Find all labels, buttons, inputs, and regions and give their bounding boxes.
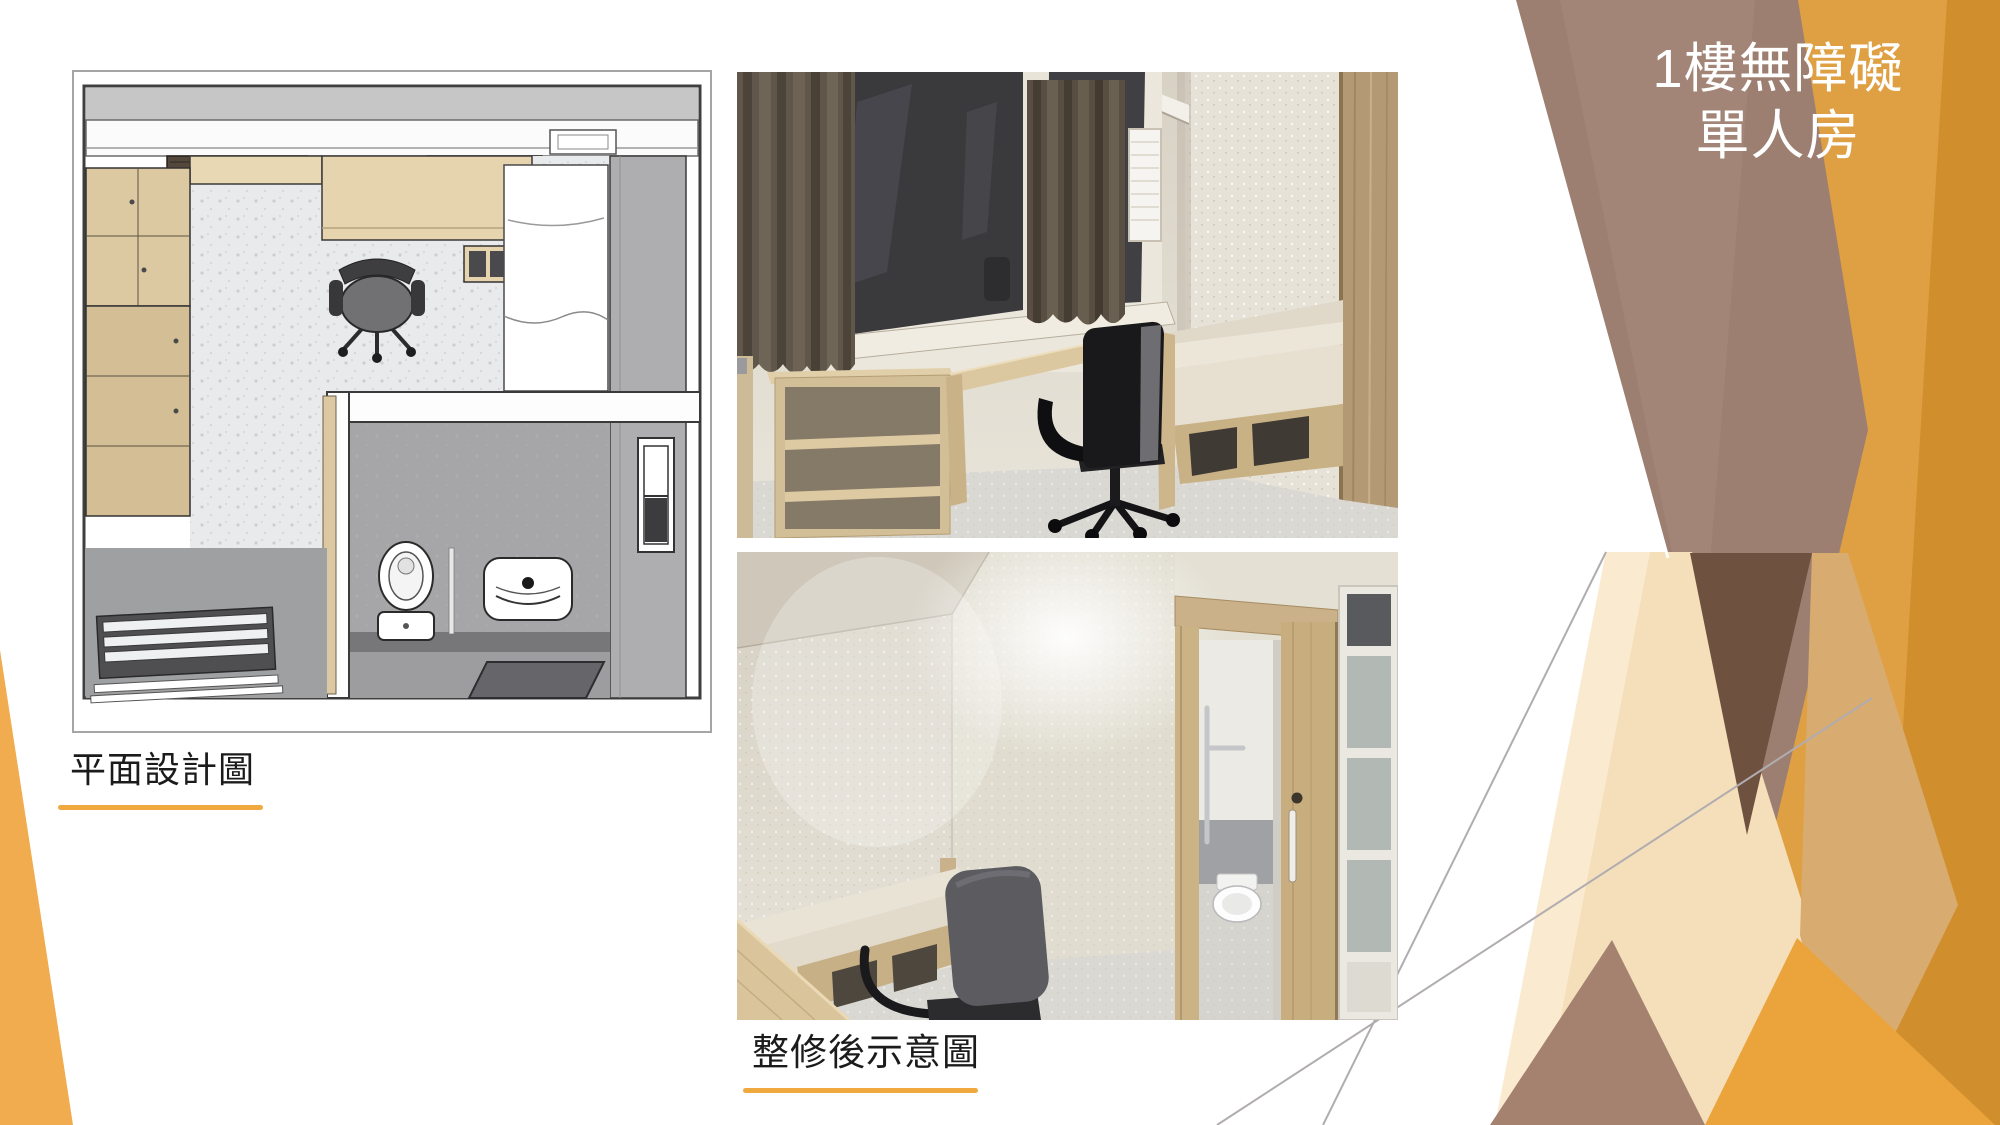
slide: 平面設計圖 整修後示意圖 1樓無障礙 單人房 — [0, 0, 2000, 1125]
render-photo-desk-room — [737, 72, 1398, 538]
slide-title-line2: 單人房 — [1568, 103, 1988, 170]
floor-plan-caption-text: 平面設計圖 — [58, 748, 263, 792]
facet-corner-wedge — [0, 650, 73, 1125]
floor-plan-caption: 平面設計圖 — [58, 748, 263, 810]
plan-cabinet-upper — [86, 168, 190, 306]
photo1-blinds-window — [1129, 129, 1161, 241]
photo2-glass-door — [1339, 586, 1398, 1020]
renovation-caption: 整修後示意圖 — [743, 1031, 980, 1093]
plan-ceiling-vent — [550, 130, 616, 154]
plan-entry — [86, 548, 327, 703]
plan-counter — [190, 156, 322, 184]
photo2-sliding-door — [1281, 622, 1339, 1020]
floor-plan-caption-underline — [58, 805, 263, 810]
slide-title: 1樓無障礙 單人房 — [1568, 36, 1988, 170]
renovation-caption-text: 整修後示意圖 — [743, 1031, 980, 1075]
renovation-caption-underline — [743, 1088, 978, 1093]
plan-side-window — [638, 438, 674, 552]
plan-office-chair — [329, 259, 425, 363]
plan-floor-mat — [469, 662, 604, 698]
slide-title-line1: 1樓無障礙 — [1568, 36, 1988, 103]
floor-plan-image — [72, 70, 712, 733]
photo1-wardrobe — [1343, 72, 1398, 538]
render-photo-doorway-room — [737, 552, 1398, 1020]
photo1-curtain-left — [737, 72, 855, 384]
photo1-curtain-right — [1027, 80, 1125, 336]
plan-toilet — [378, 542, 434, 640]
plan-bed — [504, 165, 608, 391]
plan-shower-chair — [484, 558, 572, 620]
plan-wardrobe — [86, 306, 190, 516]
photo1-doorframe-sliver — [737, 356, 753, 538]
plan-grab-pole — [449, 548, 454, 634]
plan-right-wall — [610, 156, 686, 698]
